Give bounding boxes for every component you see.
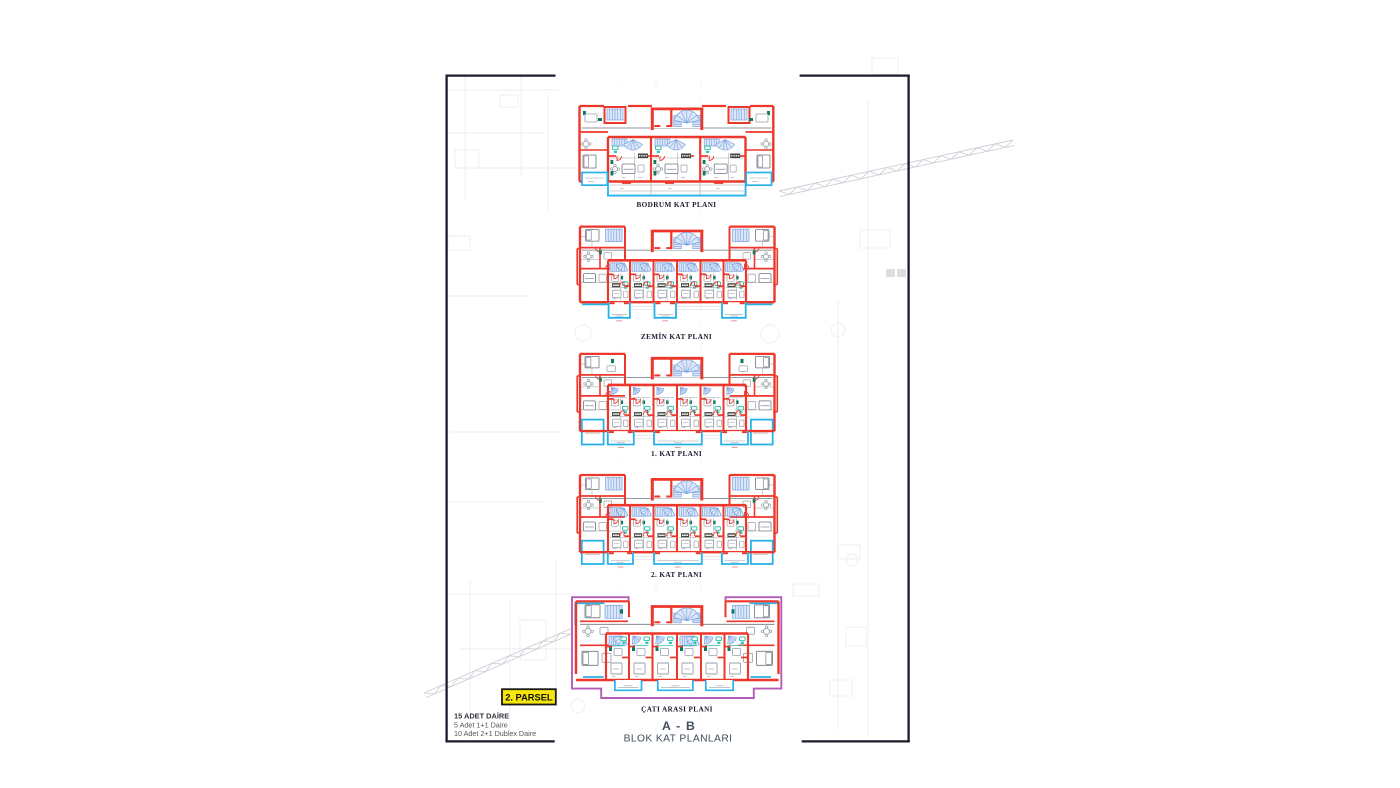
svg-text:A - B: A - B xyxy=(662,719,696,733)
svg-text:1. KAT PLANI: 1. KAT PLANI xyxy=(651,450,702,458)
svg-text:15 ADET DAİRE: 15 ADET DAİRE xyxy=(454,711,509,720)
svg-text:BLOK KAT PLANLARI: BLOK KAT PLANLARI xyxy=(624,734,733,745)
svg-text:ÇATI ARASI PLANI: ÇATI ARASI PLANI xyxy=(641,706,713,714)
svg-text:ZEMİN KAT PLANI: ZEMİN KAT PLANI xyxy=(641,331,712,341)
svg-text:2. KAT PLANI: 2. KAT PLANI xyxy=(651,571,702,579)
svg-text:2. PARSEL: 2. PARSEL xyxy=(505,693,553,703)
svg-text:10 Adet 2+1 Dublex Daire: 10 Adet 2+1 Dublex Daire xyxy=(454,729,536,738)
svg-text:BODRUM KAT PLANI: BODRUM KAT PLANI xyxy=(636,201,716,209)
